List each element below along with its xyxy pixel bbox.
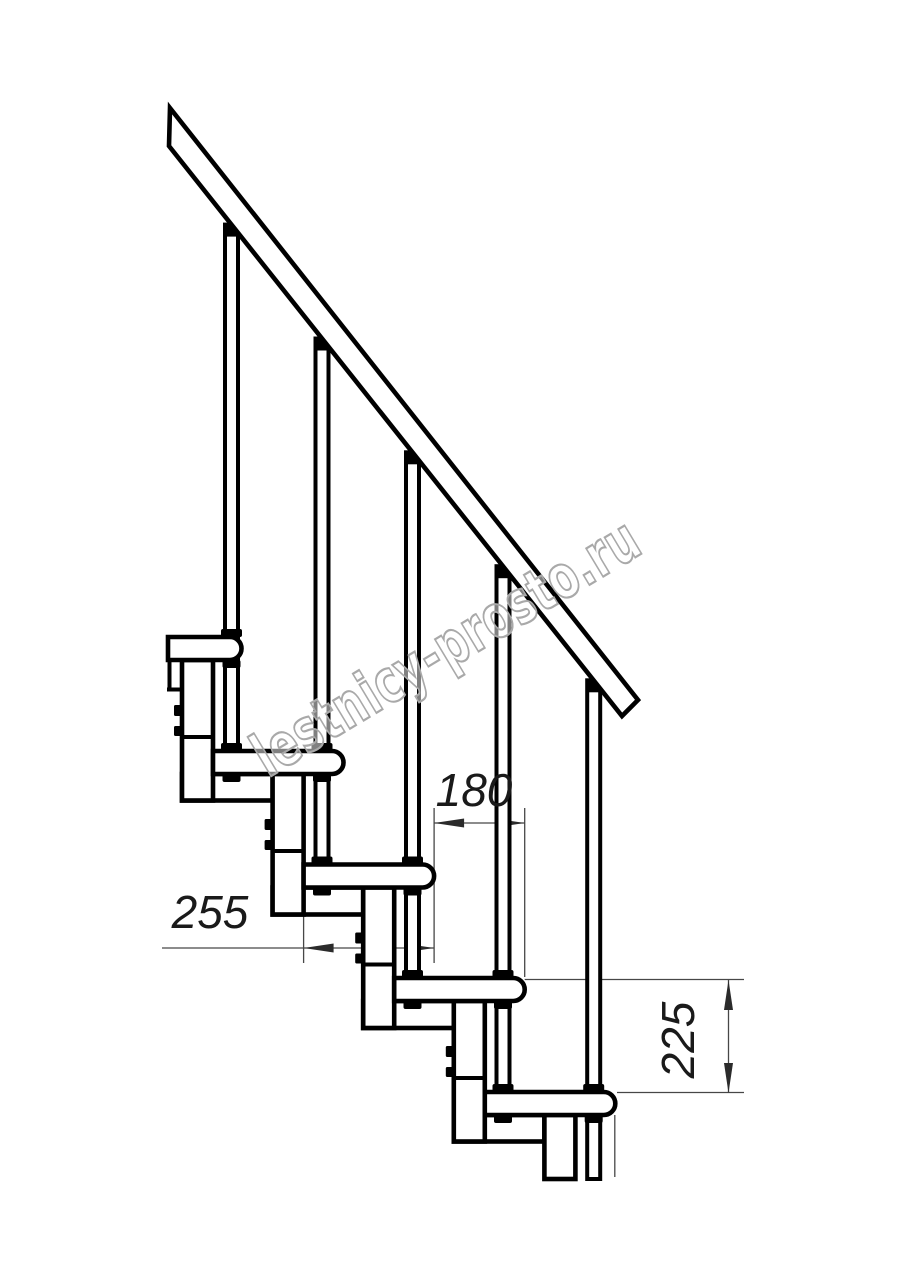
dimension-225	[724, 980, 733, 1093]
dimension-225-label: 225	[652, 1001, 704, 1079]
tread-3	[304, 865, 435, 888]
baluster-5	[586, 679, 602, 1092]
support-column-5	[544, 1115, 575, 1179]
tread-1	[168, 637, 242, 660]
support-column-1	[174, 660, 213, 801]
support-column-4	[446, 1001, 485, 1142]
tread-4	[394, 978, 525, 1001]
support-column-2	[265, 774, 304, 915]
dimension-180-label: 180	[436, 764, 513, 816]
support-column-3	[355, 888, 394, 1029]
baluster-1	[224, 224, 240, 637]
staircase-technical-drawing: 180 255 225 lestnicy-prosto.ru	[0, 0, 914, 1280]
dimension-255-label: 255	[171, 886, 249, 938]
tread-5	[485, 1092, 616, 1115]
